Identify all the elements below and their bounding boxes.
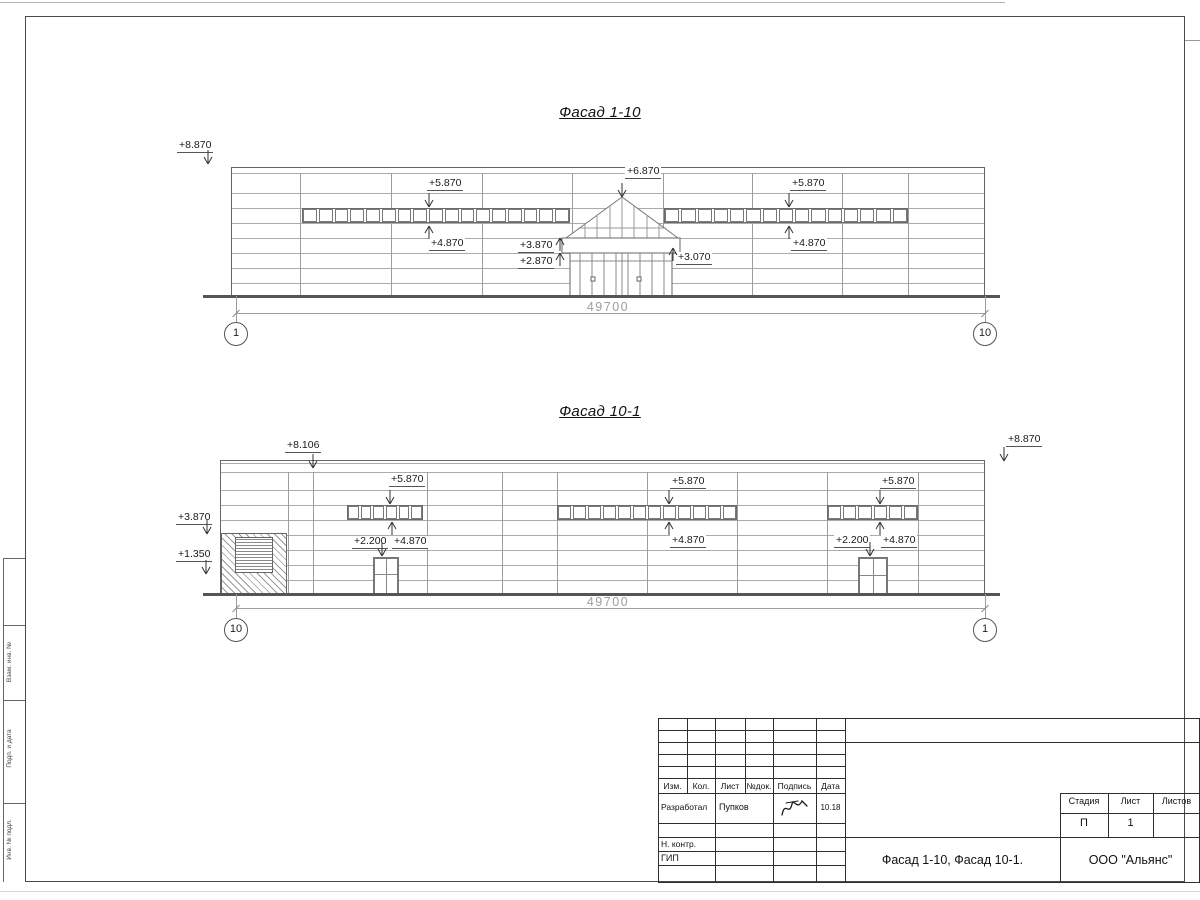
titleblock-line (1153, 793, 1154, 837)
titleblock-sheet-value: 1 (1108, 817, 1153, 829)
window-pane (303, 209, 317, 222)
siding-line (221, 490, 984, 491)
titleblock-line (773, 718, 774, 882)
side-strip-line (3, 558, 4, 882)
ground-line (203, 295, 1000, 298)
titleblock-rev-header-izm: Изм. (658, 779, 687, 792)
elevation-arrow-icon (663, 520, 675, 536)
elevation-arrow-icon (202, 150, 214, 166)
titleblock-stage-value: П (1060, 817, 1108, 829)
window-pane (398, 209, 412, 222)
panel-joint-line (827, 472, 828, 595)
panel-joint-line (502, 472, 503, 595)
elevation-arrow-icon (423, 224, 435, 240)
window-band (302, 208, 570, 223)
dimension-label: 49700 (573, 595, 643, 608)
dimension-label: 49700 (573, 300, 643, 313)
elevation-marker: +4.870 (881, 535, 917, 548)
window-pane (889, 506, 902, 519)
panel-joint-line (647, 472, 648, 595)
window-pane (386, 506, 397, 519)
drawing-sheet: Взам. инв. № Подп. и дата Инв. № подл. И… (0, 0, 1200, 900)
panel-joint-line (752, 173, 753, 297)
titleblock-line (1060, 793, 1061, 882)
titleblock-developed-name: Пупков (719, 802, 749, 812)
door-mullion (873, 559, 874, 594)
elevation-marker: +4.870 (392, 536, 428, 549)
titleblock-line (687, 718, 688, 793)
titleblock-rev-header-doc: №док. (745, 779, 773, 792)
panel-joint-line (482, 173, 483, 297)
axis-marker: 1 (973, 618, 997, 642)
titleblock-line (1108, 793, 1109, 837)
window-pane (382, 209, 396, 222)
window-pane (876, 209, 890, 222)
facade-1-10-title: Фасад 1-10 (559, 104, 641, 121)
door-mullion (386, 559, 387, 593)
elevation-marker: +5.870 (880, 476, 916, 489)
window-pane (795, 209, 809, 222)
signature-icon (776, 795, 814, 821)
window-pane (524, 209, 538, 222)
titleblock-line (845, 718, 846, 882)
elevation-arrow-icon (663, 490, 675, 506)
titleblock-line (658, 837, 1200, 838)
titleblock-line (745, 718, 746, 793)
window-pane (648, 506, 661, 519)
elevation-marker: +5.870 (670, 476, 706, 489)
elevation-arrow-icon (554, 251, 566, 267)
door-rail (375, 574, 397, 575)
elevation-arrow-icon (384, 490, 396, 506)
door-rail (860, 575, 886, 576)
window-pane (588, 506, 601, 519)
titleblock-line (1060, 813, 1200, 814)
window-pane (779, 209, 793, 222)
window-pane (618, 506, 631, 519)
elevation-marker: +8.106 (285, 440, 321, 453)
titleblock-doc-title: Фасад 1-10, Фасад 10-1. (846, 838, 1059, 881)
window-pane (413, 209, 427, 222)
panel-joint-line (427, 472, 428, 595)
titleblock-line (658, 718, 1200, 719)
siding-line (221, 472, 984, 473)
extension-line (236, 296, 237, 322)
window-pane (573, 506, 586, 519)
elevation-arrow-icon (864, 542, 876, 558)
titleblock-ncontr-label: Н. контр. (661, 839, 696, 849)
window-band (347, 505, 423, 520)
panel-joint-line (300, 173, 301, 297)
elevation-marker: +2.870 (518, 256, 554, 269)
siding-line (232, 173, 984, 174)
panel-joint-line (313, 472, 314, 595)
titleblock-line (816, 718, 817, 882)
door (373, 557, 399, 595)
siding-line (221, 463, 984, 464)
elevation-marker: +3.870 (518, 240, 554, 253)
window-pane (508, 209, 522, 222)
window-pane (708, 506, 721, 519)
window-band (827, 505, 918, 520)
titleblock-rev-header-data: Дата (816, 779, 845, 792)
titleblock-rev-header-kol: Кол. (687, 779, 715, 792)
titleblock-developed-label: Разработал (661, 802, 707, 812)
titleblock-line (658, 882, 1200, 883)
titleblock-rev-header-list: Лист (715, 779, 745, 792)
window-pane (461, 209, 475, 222)
panel-joint-line (908, 173, 909, 297)
window-pane (476, 209, 490, 222)
window-pane (714, 209, 728, 222)
window-pane (843, 506, 856, 519)
window-pane (904, 506, 917, 519)
side-strip-divider (3, 625, 25, 626)
elevation-marker: +6.870 (625, 166, 661, 179)
elevation-marker: +5.870 (427, 178, 463, 191)
elevation-arrow-icon (874, 520, 886, 536)
window-pane (492, 209, 506, 222)
titleblock-line (658, 718, 659, 882)
elevation-arrow-icon (376, 542, 388, 558)
paper-top-edge (0, 2, 1005, 3)
window-pane (858, 506, 871, 519)
window-pane (746, 209, 760, 222)
panel-joint-line (918, 472, 919, 595)
elevation-arrow-icon (386, 520, 398, 536)
window-pane (828, 506, 841, 519)
axis-marker: 10 (973, 322, 997, 346)
panel-joint-line (842, 173, 843, 297)
titleblock-gip-label: ГИП (661, 853, 679, 863)
window-pane (319, 209, 333, 222)
elevation-arrow-icon (667, 246, 679, 262)
titleblock-date: 10.18 (816, 803, 845, 812)
door (858, 557, 888, 596)
window-pane (693, 506, 706, 519)
elevation-arrow-icon (874, 490, 886, 506)
elevation-arrow-icon (998, 447, 1010, 463)
window-pane (633, 506, 646, 519)
side-strip-label: Взам. инв. № (6, 630, 13, 694)
window-pane (811, 209, 825, 222)
axis-marker: 1 (224, 322, 248, 346)
elevation-arrow-icon (423, 193, 435, 209)
window-pane (348, 506, 359, 519)
side-strip-divider (3, 558, 25, 559)
titleblock-rev-header-podpis: Подпись (773, 779, 816, 792)
window-pane (893, 209, 907, 222)
siding-line (221, 520, 984, 521)
titleblock-line (715, 718, 716, 882)
panel-joint-line (288, 472, 289, 595)
window-pane (350, 209, 364, 222)
window-pane (678, 506, 691, 519)
window-pane (844, 209, 858, 222)
elevation-marker: +4.870 (670, 535, 706, 548)
panel-joint-line (391, 173, 392, 297)
elevation-arrow-icon (200, 560, 212, 576)
elevation-arrow-icon (616, 183, 628, 199)
window-pane (860, 209, 874, 222)
titleblock-line (1060, 793, 1200, 794)
titleblock-line (658, 742, 1200, 743)
window-pane (399, 506, 410, 519)
titleblock-company: ООО "Альянс" (1061, 838, 1200, 881)
side-strip-label: Подп. и дата (6, 700, 13, 797)
window-band (557, 505, 737, 520)
window-pane (411, 506, 422, 519)
window-pane (373, 506, 384, 519)
window-pane (698, 209, 712, 222)
elevation-arrow-icon (201, 520, 213, 536)
window-pane (763, 209, 777, 222)
titleblock-sheet-label: Лист (1108, 796, 1153, 806)
window-pane (558, 506, 571, 519)
elevation-marker: +5.870 (389, 474, 425, 487)
window-pane (361, 506, 372, 519)
panel-joint-line (557, 472, 558, 595)
window-pane (730, 209, 744, 222)
window-pane (335, 209, 349, 222)
window-band (664, 208, 908, 223)
paper-corner-line (1185, 40, 1200, 41)
window-pane (366, 209, 380, 222)
window-pane (663, 506, 676, 519)
panel-joint-line (737, 472, 738, 595)
window-pane (874, 506, 887, 519)
titleblock-stage-label: Стадия (1060, 796, 1108, 806)
paper-bottom-edge (0, 891, 1200, 892)
axis-marker: 10 (224, 618, 248, 642)
window-pane (429, 209, 443, 222)
extension-line (985, 296, 986, 322)
elevation-marker: +3.070 (676, 252, 712, 265)
elevation-arrow-icon (783, 193, 795, 209)
elevation-arrow-icon (783, 224, 795, 240)
elevation-marker: +8.870 (1006, 434, 1042, 447)
window-pane (828, 209, 842, 222)
louver-grille (235, 537, 273, 573)
window-pane (603, 506, 616, 519)
elevation-marker: +4.870 (791, 238, 827, 251)
facade-10-1-title: Фасад 10-1 (559, 403, 641, 420)
titleblock-sheets-label: Листов (1153, 796, 1200, 806)
elevation-marker: +5.870 (790, 178, 826, 191)
window-pane (445, 209, 459, 222)
side-strip-label: Инв. № подл. (6, 803, 13, 876)
elevation-arrow-icon (554, 236, 566, 252)
elevation-arrow-icon (307, 454, 319, 470)
window-pane (723, 506, 736, 519)
